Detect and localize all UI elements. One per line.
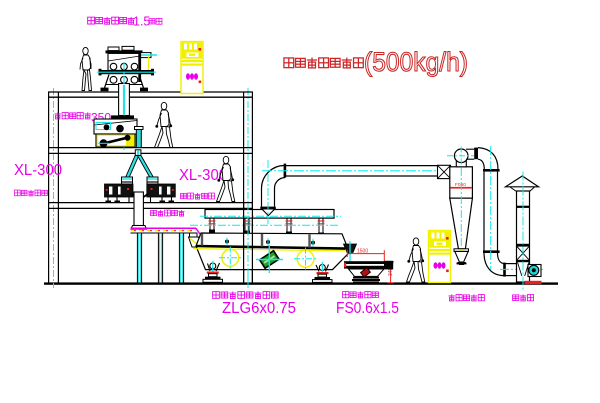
svg-text:ZLG6x0.75: ZLG6x0.75: [222, 300, 296, 317]
svg-text:1.5: 1.5: [133, 15, 150, 29]
svg-text:1500: 1500: [357, 248, 368, 254]
svg-text:FS0.6x1.5: FS0.6x1.5: [336, 300, 399, 317]
svg-text:(500kg/h): (500kg/h): [364, 47, 468, 77]
svg-text:XL-300: XL-300: [14, 162, 62, 179]
svg-text:F050: F050: [455, 182, 466, 188]
